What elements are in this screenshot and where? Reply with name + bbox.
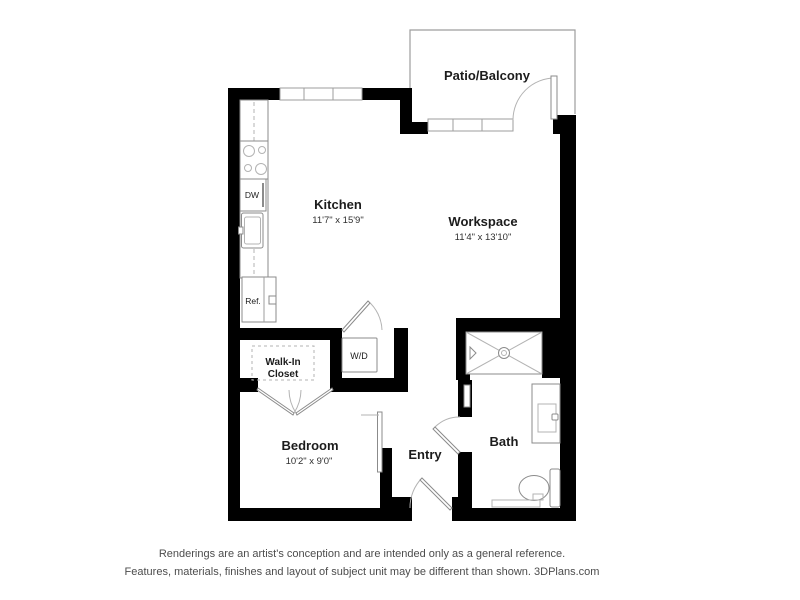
wd-door-arc [368, 301, 382, 330]
bath-floor-mat [492, 500, 540, 507]
wall-top-workspace [412, 122, 428, 134]
vanity-faucet-icon [552, 414, 558, 420]
toilet-bowl [519, 476, 549, 501]
kitchen-dimensions: 11'7" x 15'9" [312, 215, 363, 226]
floorplan-svg: Patio/Balcony Kitchen 11'7" x 15'9" Work… [0, 0, 800, 600]
workspace-dimensions: 11'4" x 13'10" [455, 232, 512, 243]
washer-dryer-label: W/D [350, 351, 368, 361]
bath-label: Bath [490, 434, 519, 449]
disclaimer-text: Renderings are an artist's conception an… [125, 548, 600, 578]
refrigerator-label: Ref. [245, 296, 261, 306]
shower-drain-icon [499, 348, 510, 359]
wall-step [400, 88, 412, 134]
bedroom-label: Bedroom [281, 438, 338, 453]
wall-wd-right [394, 328, 408, 392]
dishwasher-label: DW [245, 190, 259, 200]
bath-wall-niche [464, 385, 470, 407]
entry-door-leaf [420, 478, 452, 510]
wall-frontdoor-left-jamb [392, 497, 412, 521]
kitchen-fixtures [239, 100, 277, 322]
bedroom-door-leaf [378, 412, 383, 472]
disclaimer-line2: Features, materials, finishes and layout… [125, 566, 600, 578]
patio-door-leaf [551, 76, 557, 119]
kitchen-window [280, 88, 362, 100]
closet-door-leaf-left [257, 388, 294, 415]
workspace-window [428, 119, 513, 131]
patio-door-arc [513, 78, 555, 120]
wall-left [228, 88, 240, 521]
disclaimer-line1: Renderings are an artist's conception an… [159, 548, 565, 560]
kitchen-faucet-icon [239, 227, 244, 234]
wall-frontdoor-right-jamb [452, 497, 472, 521]
patio-label: Patio/Balcony [444, 68, 531, 83]
wall-bottom-left [228, 508, 410, 521]
bath-door-arc [435, 417, 460, 427]
workspace-label: Workspace [448, 214, 517, 229]
refrigerator-handle [269, 296, 276, 304]
toilet-tank [550, 469, 560, 507]
kitchen-label: Kitchen [314, 197, 362, 212]
closet-door-leaf-right [296, 388, 333, 415]
wd-door-leaf [342, 301, 370, 332]
walls [228, 88, 576, 521]
walk-in-closet-label-line2: Closet [268, 369, 299, 380]
closet-door-arc-left [294, 390, 301, 413]
wall-shower-corner [542, 318, 576, 378]
entry-label: Entry [408, 447, 442, 462]
bedroom-dimensions: 10'2" x 9'0" [286, 456, 333, 467]
wall-kitchen-bottom [228, 328, 342, 340]
walk-in-closet-label-line1: Walk-In [265, 357, 300, 368]
floorplan-page: Patio/Balcony Kitchen 11'7" x 15'9" Work… [0, 0, 800, 600]
closet-door-arc-right [289, 390, 296, 413]
wall-top-kitchen-left [228, 88, 280, 100]
